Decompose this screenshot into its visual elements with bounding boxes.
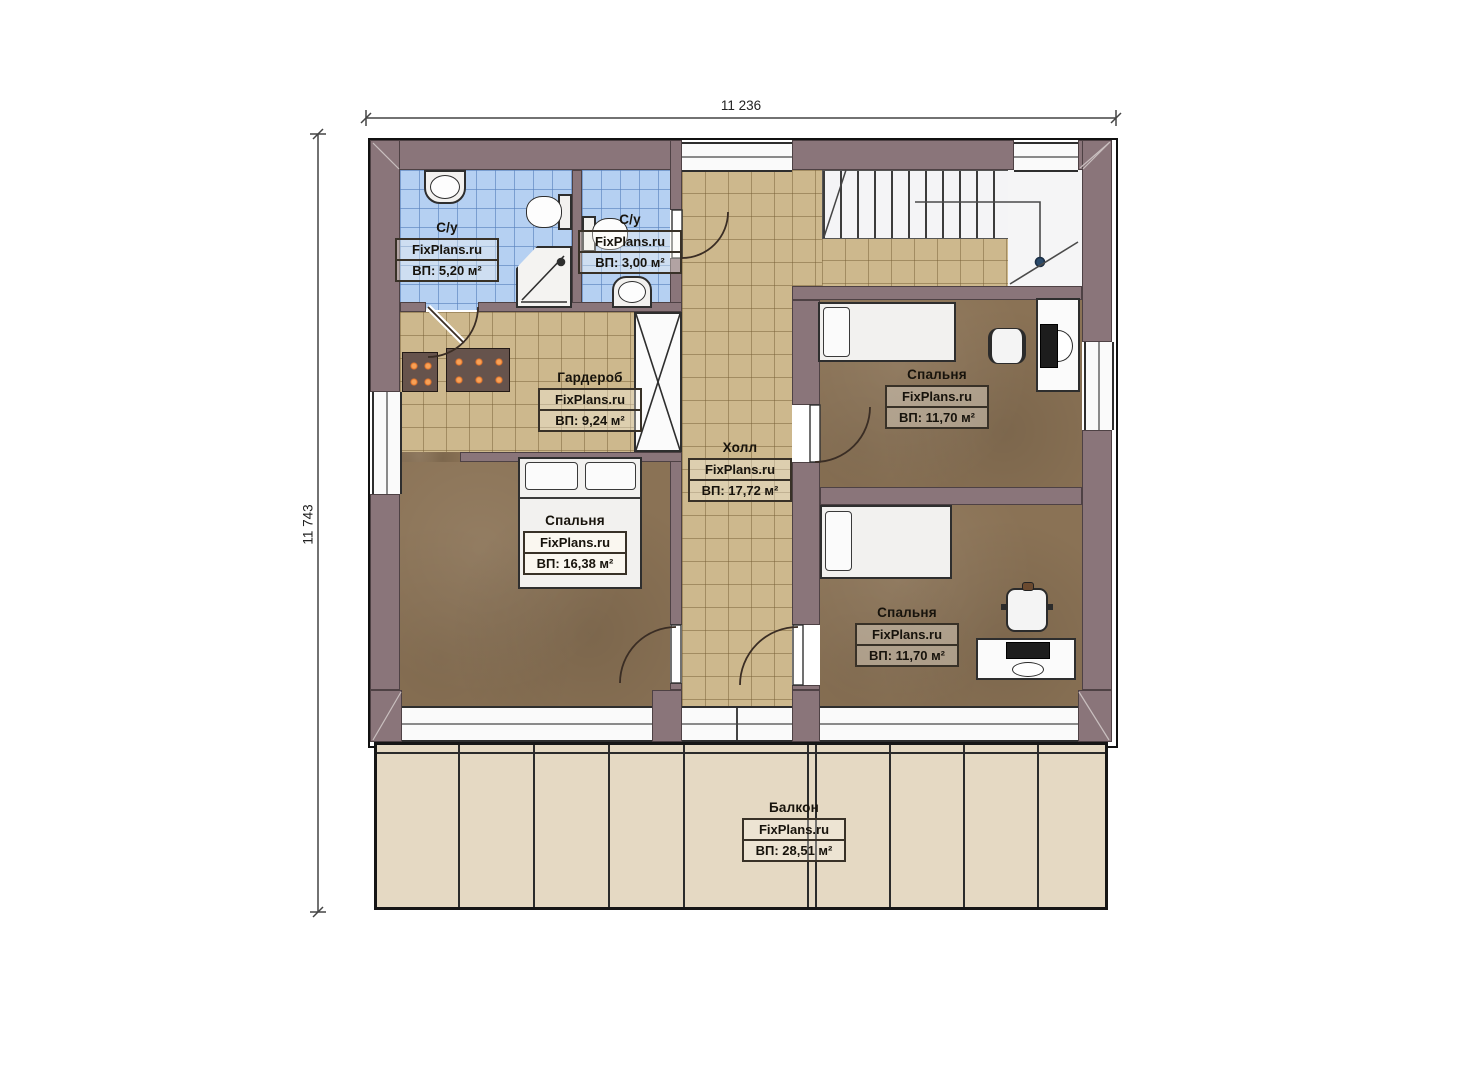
room-brand: FixPlans.ru bbox=[397, 240, 497, 259]
balcony-door bbox=[682, 706, 792, 742]
room-name: Спальня bbox=[523, 513, 627, 528]
room-label-hall: Холл FixPlans.ru ВП: 17,72 м² bbox=[688, 440, 792, 502]
room-area: ВП: 28,51 м² bbox=[744, 839, 844, 860]
room-info-box: FixPlans.ru ВП: 9,24 м² bbox=[538, 388, 642, 432]
room-name: С/у bbox=[578, 212, 682, 227]
room-area: ВП: 11,70 м² bbox=[887, 406, 987, 427]
room-info-box: FixPlans.ru ВП: 5,20 м² bbox=[395, 238, 499, 282]
monitor bbox=[1040, 324, 1058, 368]
pillow bbox=[585, 462, 636, 490]
wall bbox=[1082, 140, 1112, 342]
room-name: Спальня bbox=[855, 605, 959, 620]
window bbox=[372, 392, 402, 494]
stair-landing bbox=[1008, 170, 1082, 287]
window bbox=[820, 706, 1078, 742]
wall bbox=[670, 683, 682, 690]
dimension-width-label: 11 236 bbox=[681, 98, 801, 113]
wardrobe-cabinet bbox=[402, 352, 438, 392]
window bbox=[402, 706, 652, 742]
room-name: Спальня bbox=[885, 367, 989, 382]
room-label-bedroom-master: Спальня FixPlans.ru ВП: 16,38 м² bbox=[523, 513, 627, 575]
balcony-divider bbox=[683, 745, 685, 907]
balcony-divider bbox=[1037, 745, 1039, 907]
bed-blanket-line bbox=[520, 497, 640, 499]
room-brand: FixPlans.ru bbox=[857, 625, 957, 644]
balcony-rail-line bbox=[377, 752, 1105, 754]
toilet-bowl bbox=[526, 196, 562, 228]
room-label-bedroom-top-right: Спальня FixPlans.ru ВП: 11,70 м² bbox=[885, 367, 989, 429]
room-name: Гардероб bbox=[538, 370, 642, 385]
staircase bbox=[822, 170, 1010, 239]
room-name: С/у bbox=[395, 220, 499, 235]
room-area: ВП: 16,38 м² bbox=[525, 552, 625, 573]
wall bbox=[400, 302, 426, 312]
room-info-box: FixPlans.ru ВП: 11,70 м² bbox=[885, 385, 989, 429]
room-area: ВП: 5,20 м² bbox=[397, 259, 497, 280]
room-label-bedroom-bottom-right: Спальня FixPlans.ru ВП: 11,70 м² bbox=[855, 605, 959, 667]
room-info-box: FixPlans.ru ВП: 3,00 м² bbox=[578, 230, 682, 274]
hall-floor-under-stairs bbox=[792, 170, 822, 286]
room-brand: FixPlans.ru bbox=[540, 390, 640, 409]
chair bbox=[1006, 588, 1048, 632]
room-label-balcony: Балкон FixPlans.ru ВП: 28,51 м² bbox=[742, 800, 846, 862]
room-brand: FixPlans.ru bbox=[580, 232, 680, 251]
sink-basin bbox=[430, 175, 460, 199]
room-brand: FixPlans.ru bbox=[525, 533, 625, 552]
room-info-box: FixPlans.ru ВП: 17,72 м² bbox=[688, 458, 792, 502]
wall bbox=[370, 494, 400, 690]
wardrobe-cabinet bbox=[446, 348, 510, 392]
wall bbox=[792, 685, 820, 690]
room-label-bathroom-1: С/у FixPlans.ru ВП: 5,20 м² bbox=[395, 220, 499, 282]
keyboard bbox=[1012, 662, 1044, 677]
room-brand: FixPlans.ru bbox=[744, 820, 844, 839]
window bbox=[1084, 342, 1114, 430]
office-chair bbox=[988, 328, 1026, 364]
wall bbox=[370, 140, 682, 170]
balcony-divider bbox=[889, 745, 891, 907]
room-name: Холл bbox=[688, 440, 792, 455]
hall-floor bbox=[682, 170, 792, 706]
balcony-area bbox=[374, 742, 1108, 910]
balcony-divider bbox=[963, 745, 965, 907]
room-area: ВП: 17,72 м² bbox=[690, 479, 790, 500]
room-area: ВП: 11,70 м² bbox=[857, 644, 957, 665]
balcony-divider bbox=[458, 745, 460, 907]
floor-plan: 11 236 11 743 bbox=[0, 0, 1473, 1080]
window bbox=[682, 142, 792, 172]
window bbox=[1014, 142, 1078, 172]
wall-pier bbox=[792, 690, 820, 742]
room-brand: FixPlans.ru bbox=[887, 387, 987, 406]
wall-pier bbox=[370, 690, 402, 742]
wall bbox=[792, 140, 1014, 170]
wall-pier bbox=[652, 690, 682, 742]
pillow bbox=[825, 511, 852, 571]
wall bbox=[670, 140, 682, 210]
balcony-door-divider bbox=[736, 708, 738, 740]
room-brand: FixPlans.ru bbox=[690, 460, 790, 479]
sink-basin bbox=[618, 281, 646, 303]
wall bbox=[792, 462, 820, 625]
master-bedroom-floor bbox=[400, 452, 460, 462]
room-area: ВП: 3,00 м² bbox=[580, 251, 680, 272]
wall bbox=[820, 487, 1082, 505]
wall bbox=[1082, 430, 1112, 690]
room-info-box: FixPlans.ru ВП: 16,38 м² bbox=[523, 531, 627, 575]
hall-floor-under-stairs-2 bbox=[822, 237, 1008, 286]
balcony-divider bbox=[608, 745, 610, 907]
page: { "plan": { "brand": "FixPlans.ru", "dim… bbox=[0, 0, 1473, 1080]
room-name: Балкон bbox=[742, 800, 846, 815]
room-label-bathroom-2: С/у FixPlans.ru ВП: 3,00 м² bbox=[578, 212, 682, 274]
room-info-box: FixPlans.ru ВП: 11,70 м² bbox=[855, 623, 959, 667]
room-label-wardrobe: Гардероб FixPlans.ru ВП: 9,24 м² bbox=[538, 370, 642, 432]
pillow bbox=[823, 307, 850, 357]
pillow bbox=[525, 462, 578, 490]
wall-pier bbox=[1078, 690, 1112, 742]
dimension-height-label: 11 743 bbox=[301, 465, 316, 585]
wall bbox=[792, 300, 820, 405]
room-area: ВП: 9,24 м² bbox=[540, 409, 640, 430]
balcony-divider bbox=[533, 745, 535, 907]
monitor bbox=[1006, 642, 1050, 659]
room-info-box: FixPlans.ru ВП: 28,51 м² bbox=[742, 818, 846, 862]
